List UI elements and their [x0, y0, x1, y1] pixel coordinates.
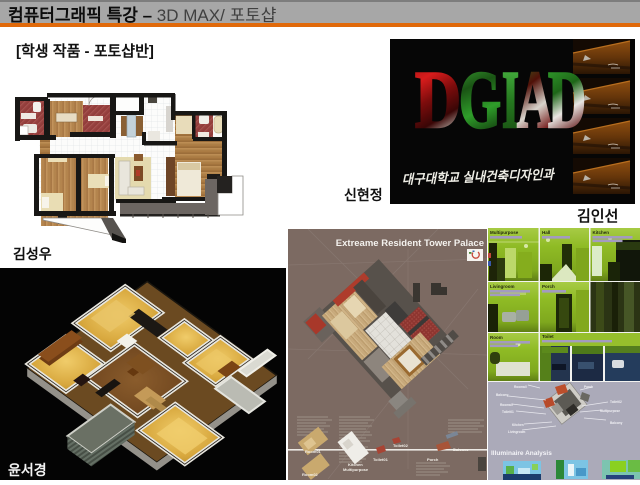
svg-text:Roomall: Roomall — [514, 385, 527, 389]
svg-text:Multipurpose: Multipurpose — [600, 409, 620, 413]
svg-text:Toilet01: Toilet01 — [373, 457, 389, 462]
svg-text:Balcony: Balcony — [496, 393, 509, 397]
svg-text:Porch: Porch — [427, 457, 439, 462]
svg-text:Balcano: Balcano — [453, 447, 469, 452]
svg-text:Room02: Room02 — [302, 472, 319, 477]
svg-text:Toilet02: Toilet02 — [393, 443, 409, 448]
svg-text:Multipurpose: Multipurpose — [490, 230, 519, 235]
svg-text:Porch: Porch — [542, 284, 555, 289]
svg-text:Livingroom: Livingroom — [508, 430, 526, 434]
svg-text:Illuminaire Analysis: Illuminaire Analysis — [491, 450, 552, 457]
svg-text:Extreame Resident Tower Palace: Extreame Resident Tower Palace — [336, 238, 484, 249]
svg-text:Room: Room — [490, 335, 503, 340]
svg-text:Kitchen: Kitchen — [593, 230, 610, 235]
svg-text:G: G — [459, 54, 501, 145]
svg-text:Room01: Room01 — [305, 449, 322, 454]
svg-text:Toilet01: Toilet01 — [502, 410, 514, 414]
svg-text:Roomall: Roomall — [500, 403, 513, 407]
svg-text:Livingroom: Livingroom — [490, 284, 515, 289]
svg-text:Multipurpose: Multipurpose — [343, 467, 369, 472]
svg-text:D: D — [415, 54, 461, 145]
svg-text:D: D — [548, 54, 586, 145]
svg-text:Toilet: Toilet — [542, 334, 554, 339]
svg-text:Hall: Hall — [542, 230, 550, 235]
svg-text:Porch: Porch — [584, 385, 593, 389]
svg-text:Balcony: Balcony — [610, 421, 623, 425]
svg-text:Toilet02: Toilet02 — [610, 400, 622, 404]
svg-text:Kitchen: Kitchen — [512, 423, 524, 427]
